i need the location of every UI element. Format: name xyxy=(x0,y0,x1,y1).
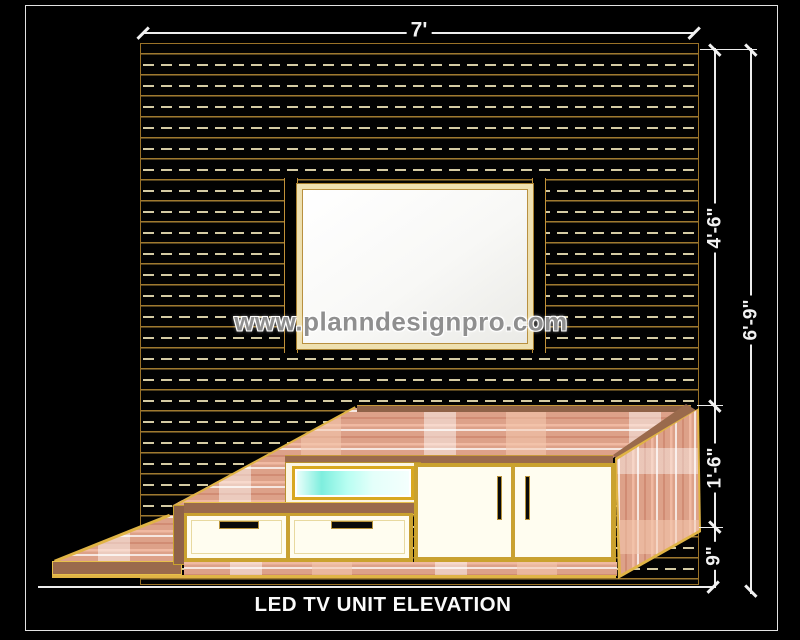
panel-dash-row xyxy=(143,64,696,66)
cabinet-top-rear-edge xyxy=(357,405,691,412)
dimension-width-label: 7' xyxy=(407,19,432,42)
door-2-handle xyxy=(525,476,530,520)
floor-line xyxy=(38,586,715,588)
watermark-text: www.planndesignpro.com xyxy=(234,307,568,338)
plinth-band xyxy=(184,562,617,576)
drawer-2-handle xyxy=(331,521,373,529)
cad-drawing-canvas: 7' www.planndesignpro.com xyxy=(0,0,800,640)
glass-shelf-frame xyxy=(292,466,414,500)
drawer-section xyxy=(184,513,413,562)
dimension-base-height-label: 9" xyxy=(704,542,725,570)
glass-shelf xyxy=(297,471,409,495)
dimension-total-height-label: 6'-9" xyxy=(741,296,762,345)
panel-dash-row xyxy=(143,127,696,129)
platform-front-face xyxy=(52,561,182,575)
panel-dash-row xyxy=(143,400,696,402)
panel-dash-row xyxy=(143,358,696,360)
panel-dash-row xyxy=(143,148,696,150)
panel-dash-row xyxy=(143,169,696,171)
panel-dash-row xyxy=(143,106,696,108)
base-gold-strip xyxy=(52,575,616,578)
extension-line-cabinet-top xyxy=(697,405,723,406)
door-section xyxy=(414,463,616,562)
door-1-handle xyxy=(497,476,502,520)
drawing-title: LED TV UNIT ELEVATION xyxy=(255,593,512,617)
dimension-unit-height-label: 1'-6" xyxy=(705,444,726,493)
dimension-panel-height-label: 4'-6" xyxy=(705,204,726,253)
glass-shelf-niche xyxy=(285,462,421,504)
dimension-line-inner-vertical xyxy=(714,48,716,588)
extension-line-plinth xyxy=(699,527,723,528)
drawer-1-handle xyxy=(219,521,259,529)
panel-dash-row xyxy=(143,379,696,381)
panel-dash-row xyxy=(143,85,696,87)
